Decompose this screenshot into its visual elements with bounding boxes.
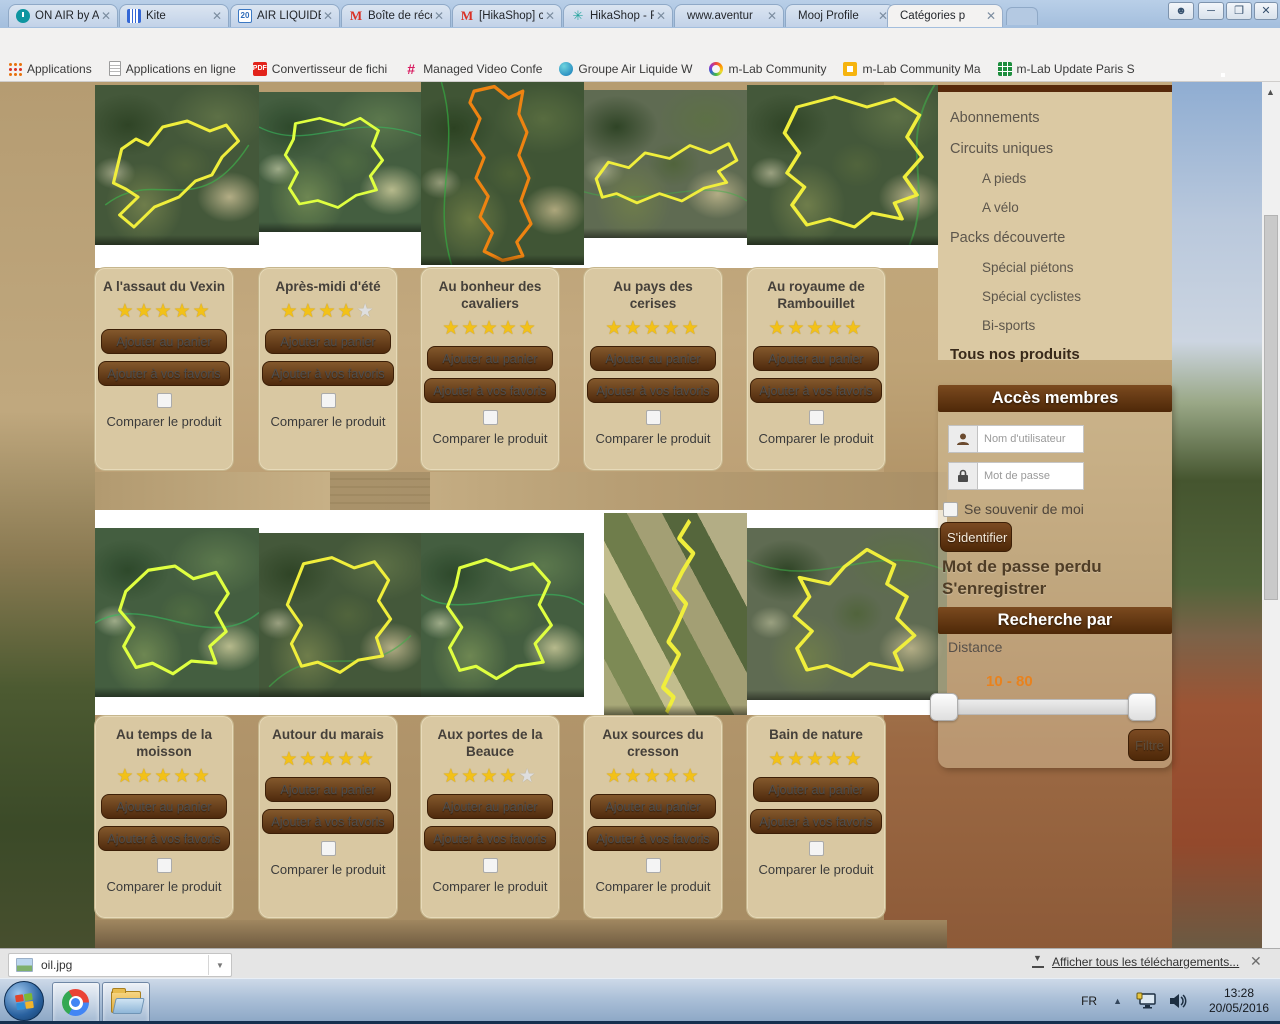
- product-card: Aux portes de la Beauce ★★★★★ Ajouter au…: [421, 716, 559, 918]
- hikashop-icon: ✳: [571, 9, 585, 23]
- volume-icon[interactable]: [1168, 992, 1188, 1010]
- chevron-down-icon[interactable]: ▼: [209, 961, 231, 970]
- columns-icon: [127, 9, 141, 23]
- show-all-downloads[interactable]: Afficher tous les téléchargements...: [1032, 955, 1239, 969]
- product-title[interactable]: Après-midi d'été: [260, 269, 396, 295]
- rating-stars: ★★★★★: [260, 750, 396, 770]
- bookmarks-bar: Applications Applications en ligne PDFCo…: [0, 56, 1280, 82]
- background-photo: [1172, 82, 1262, 948]
- members-panel: Accès membres Se souvenir de moi S'ident…: [938, 385, 1172, 768]
- rating-stars: ★★★★★: [585, 319, 721, 339]
- profile-person-icon[interactable]: ☻: [1168, 2, 1194, 20]
- close-tab-icon[interactable]: ✕: [432, 10, 446, 22]
- distance-label: Distance: [948, 639, 1002, 655]
- compare-checkbox[interactable]: [646, 858, 661, 873]
- product-map-moisson[interactable]: [95, 528, 259, 697]
- category-packs-decouverte[interactable]: Packs découverte: [950, 230, 1172, 246]
- add-to-cart-button[interactable]: Ajouter au panier: [265, 329, 391, 354]
- gmail-icon: M: [460, 9, 474, 23]
- lost-password-link[interactable]: Mot de passe perdu: [942, 557, 1102, 577]
- tab-mooj-profile[interactable]: Mooj Profile✕: [785, 4, 895, 27]
- bookmark-mlab-update[interactable]: m-Lab Update Paris S: [998, 62, 1135, 76]
- tab-onair[interactable]: ON AIR by A✕: [8, 4, 118, 27]
- new-tab-button[interactable]: [1006, 7, 1038, 25]
- browser-toolbar: ← → ↻ ⌂ aventures-culturelles.com/nos-pr…: [0, 28, 1280, 56]
- distance-slider-track[interactable]: [940, 699, 1154, 715]
- chrome-icon: [62, 989, 89, 1016]
- sidebar-header-bar: [938, 85, 1172, 92]
- add-to-favorites-button[interactable]: Ajouter à vos favoris: [587, 378, 719, 403]
- rating-stars: ★★★★★: [748, 750, 884, 770]
- add-to-cart-button[interactable]: Ajouter au panier: [265, 777, 391, 802]
- product-map-vexin[interactable]: [95, 85, 259, 245]
- product-map-cavaliers[interactable]: [421, 82, 584, 265]
- page-icon: [109, 61, 121, 76]
- start-button[interactable]: [4, 981, 44, 1021]
- compare-checkbox[interactable]: [321, 841, 336, 856]
- gmail-icon: M: [349, 9, 363, 23]
- product-card: Au pays des cerises ★★★★★ Ajouter au pan…: [584, 268, 722, 470]
- compare-label: Comparer le produit: [585, 431, 721, 446]
- remember-checkbox[interactable]: [943, 502, 958, 517]
- add-to-favorites-button[interactable]: Ajouter à vos favoris: [98, 361, 230, 386]
- page-viewport: A l'assaut du Vexin ★★★★★ Ajouter au pan…: [0, 82, 1280, 948]
- product-card: Au temps de la moisson ★★★★★ Ajouter au …: [95, 716, 233, 918]
- close-tab-icon[interactable]: ✕: [210, 10, 224, 22]
- add-to-favorites-button[interactable]: Ajouter à vos favoris: [98, 826, 230, 851]
- compare-label: Comparer le produit: [422, 879, 558, 894]
- close-tab-icon[interactable]: ✕: [765, 10, 779, 22]
- compare-label: Comparer le produit: [422, 431, 558, 446]
- filter-button[interactable]: Filtre: [1128, 729, 1170, 761]
- category-a-pieds[interactable]: A pieds: [982, 171, 1172, 186]
- clock-date: 20/05/2016: [1202, 1001, 1276, 1016]
- background-photo: [95, 920, 947, 948]
- compare-checkbox[interactable]: [809, 410, 824, 425]
- product-map-apres-midi[interactable]: [259, 92, 421, 232]
- taskbar-explorer-button[interactable]: [102, 982, 150, 1024]
- compare-checkbox[interactable]: [646, 410, 661, 425]
- background-tower: [330, 472, 430, 510]
- background-photo: [0, 82, 95, 948]
- tab-strip: ON AIR by A✕ Kite✕ 20AIR LIQUIDE✕ MBoîte…: [0, 0, 1280, 28]
- apps-grid-icon: [8, 62, 22, 76]
- close-tab-icon[interactable]: ✕: [321, 10, 335, 22]
- category-tous-nos-produits[interactable]: Tous nos produits: [950, 346, 1172, 363]
- category-special-cyclistes[interactable]: Spécial cyclistes: [982, 289, 1172, 304]
- add-to-favorites-button[interactable]: Ajouter à vos favoris: [262, 809, 394, 834]
- product-title[interactable]: Au royaume de Rambouillet: [748, 269, 884, 312]
- close-tab-icon[interactable]: ✕: [654, 10, 668, 22]
- product-card: A l'assaut du Vexin ★★★★★ Ajouter au pan…: [95, 268, 233, 470]
- close-tab-icon[interactable]: ✕: [984, 10, 998, 22]
- add-to-cart-button[interactable]: Ajouter au panier: [753, 346, 879, 371]
- category-special-pietons[interactable]: Spécial piétons: [982, 260, 1172, 275]
- product-map-cresson[interactable]: [604, 513, 747, 715]
- add-to-cart-button[interactable]: Ajouter au panier: [590, 794, 716, 819]
- product-map-cerises[interactable]: [584, 90, 747, 238]
- register-link[interactable]: S'enregistrer: [942, 579, 1046, 599]
- add-to-cart-button[interactable]: Ajouter au panier: [101, 794, 227, 819]
- add-to-favorites-button[interactable]: Ajouter à vos favoris: [750, 809, 882, 834]
- taskbar-chrome-button[interactable]: [52, 982, 100, 1024]
- windows-taskbar: FR ▲ 13:28 20/05/2016: [0, 978, 1280, 1024]
- add-to-favorites-button[interactable]: Ajouter à vos favoris: [424, 826, 556, 851]
- downloads-bar: oil.jpg ▼ Afficher tous les téléchargeme…: [0, 948, 1280, 978]
- search-title: Recherche par: [938, 607, 1172, 634]
- background-photo: [95, 472, 947, 510]
- close-tab-icon[interactable]: ✕: [543, 10, 557, 22]
- add-to-cart-button[interactable]: Ajouter au panier: [427, 794, 553, 819]
- clock-time: 13:28: [1202, 986, 1276, 1001]
- add-to-favorites-button[interactable]: Ajouter à vos favoris: [424, 378, 556, 403]
- login-button[interactable]: S'identifier: [940, 522, 1012, 552]
- folder-icon: [111, 991, 141, 1013]
- username-row: [948, 425, 1094, 455]
- compare-checkbox[interactable]: [809, 841, 824, 856]
- distance-range-value: 10 - 80: [986, 673, 1033, 690]
- download-icon: [1032, 956, 1044, 968]
- bookmark-convertisseur[interactable]: PDFConvertisseur de fichi: [253, 62, 387, 76]
- calendar-20-icon: 20: [238, 9, 252, 23]
- compare-label: Comparer le produit: [96, 879, 232, 894]
- rating-stars: ★★★★★: [96, 767, 232, 787]
- add-to-cart-button[interactable]: Ajouter au panier: [101, 329, 227, 354]
- add-to-cart-button[interactable]: Ajouter au panier: [753, 777, 879, 802]
- green-table-icon: [998, 62, 1012, 76]
- minimize-button[interactable]: ─: [1198, 2, 1224, 20]
- product-card: Après-midi d'été ★★★★★ Ajouter au panier…: [259, 268, 397, 470]
- person-icon: [948, 425, 978, 453]
- windows-logo-icon: [15, 993, 35, 1011]
- download-item-chip[interactable]: oil.jpg ▼: [8, 953, 232, 977]
- tab-airliquide[interactable]: 20AIR LIQUIDE✕: [230, 4, 340, 27]
- product-card: Bain de nature ★★★★★ Ajouter au panier A…: [747, 716, 885, 918]
- product-title[interactable]: Aux portes de la Beauce: [422, 717, 558, 760]
- rating-stars: ★★★★★: [422, 319, 558, 339]
- product-title[interactable]: Aux sources du cresson: [585, 717, 721, 760]
- tab-hikashop[interactable]: ✳HikaShop - F✕: [563, 4, 673, 27]
- bookmark-mlab-community[interactable]: m-Lab Community: [709, 62, 826, 76]
- password-row: [948, 462, 1094, 492]
- product-map-rambouillet[interactable]: [747, 85, 947, 245]
- compare-label: Comparer le produit: [748, 431, 884, 446]
- screen: ON AIR by A✕ Kite✕ 20AIR LIQUIDE✕ MBoîte…: [0, 0, 1280, 1024]
- rating-stars: ★★★★★: [260, 302, 396, 322]
- add-to-cart-button[interactable]: Ajouter au panier: [427, 346, 553, 371]
- add-to-favorites-button[interactable]: Ajouter à vos favoris: [750, 378, 882, 403]
- rating-stars: ★★★★★: [585, 767, 721, 787]
- remember-label: Se souvenir de moi: [964, 501, 1084, 517]
- tab-aventures[interactable]: www.aventur✕: [674, 4, 784, 27]
- category-circuits-uniques[interactable]: Circuits uniques: [950, 141, 1172, 157]
- username-input[interactable]: [978, 425, 1084, 453]
- compare-label: Comparer le produit: [260, 862, 396, 877]
- close-downloads-icon[interactable]: ✕: [1250, 953, 1262, 970]
- product-title[interactable]: Bain de nature: [748, 717, 884, 743]
- rating-stars: ★★★★★: [96, 302, 232, 322]
- hash-icon: #: [404, 62, 418, 76]
- slider-handle-min[interactable]: [930, 693, 958, 721]
- tab-hikashop-mail[interactable]: M[HikaShop] c✕: [452, 4, 562, 27]
- add-to-cart-button[interactable]: Ajouter au panier: [590, 346, 716, 371]
- compare-checkbox[interactable]: [321, 393, 336, 408]
- tab-kite[interactable]: Kite✕: [119, 4, 229, 27]
- show-all-downloads-link[interactable]: Afficher tous les téléchargements...: [1052, 955, 1239, 969]
- compare-label: Comparer le produit: [96, 414, 232, 429]
- language-indicator[interactable]: FR: [1081, 994, 1097, 1008]
- globe-icon: [559, 62, 573, 76]
- product-card: Au bonheur des cavaliers ★★★★★ Ajouter a…: [421, 268, 559, 470]
- compare-checkbox[interactable]: [483, 858, 498, 873]
- members-title: Accès membres: [938, 385, 1172, 412]
- pdf-icon: PDF: [253, 62, 267, 76]
- system-tray: FR ▲ 13:28 20/05/2016: [1081, 979, 1276, 1022]
- compare-checkbox[interactable]: [157, 393, 172, 408]
- product-card: Aux sources du cresson ★★★★★ Ajouter au …: [584, 716, 722, 918]
- bookmark-air-liquide[interactable]: Groupe Air Liquide W: [559, 62, 692, 76]
- dots-circle-icon: [709, 62, 723, 76]
- close-tab-icon[interactable]: ✕: [99, 10, 113, 22]
- scrollbar-thumb[interactable]: [1264, 215, 1278, 600]
- bookmark-apps-en-ligne[interactable]: Applications en ligne: [109, 61, 236, 76]
- product-title[interactable]: Au temps de la moisson: [96, 717, 232, 760]
- category-menu: Abonnements Circuits uniques A pieds A v…: [938, 92, 1172, 360]
- category-bi-sports[interactable]: Bi-sports: [982, 318, 1172, 333]
- product-map-beauce[interactable]: [421, 533, 584, 697]
- product-title[interactable]: Au bonheur des cavaliers: [422, 269, 558, 312]
- compare-checkbox[interactable]: [157, 858, 172, 873]
- add-to-favorites-button[interactable]: Ajouter à vos favoris: [587, 826, 719, 851]
- bookmark-mlab-community-ma[interactable]: m-Lab Community Ma: [843, 62, 980, 76]
- product-card: Au royaume de Rambouillet ★★★★★ Ajouter …: [747, 268, 885, 470]
- lock-icon: [948, 462, 978, 490]
- power-icon: [16, 9, 30, 23]
- show-hidden-icons[interactable]: ▲: [1113, 996, 1122, 1006]
- product-map-marais[interactable]: [259, 533, 421, 697]
- remember-me-row: Se souvenir de moi: [943, 501, 1084, 517]
- rating-stars: ★★★★★: [748, 319, 884, 339]
- category-a-velo[interactable]: A vélo: [982, 200, 1172, 215]
- compare-label: Comparer le produit: [748, 862, 884, 877]
- network-icon[interactable]: [1136, 992, 1158, 1010]
- compare-label: Comparer le produit: [585, 879, 721, 894]
- bookmark-managed-video[interactable]: #Managed Video Confe: [404, 62, 542, 76]
- product-title[interactable]: A l'assaut du Vexin: [96, 269, 232, 295]
- product-card: Autour du marais ★★★★★ Ajouter au panier…: [259, 716, 397, 918]
- yellow-square-icon: [843, 62, 857, 76]
- product-title[interactable]: Autour du marais: [260, 717, 396, 743]
- close-window-button[interactable]: ✕: [1254, 2, 1278, 20]
- scroll-up-icon[interactable]: ▲: [1266, 87, 1275, 97]
- maximize-button[interactable]: ❐: [1226, 2, 1252, 20]
- slider-handle-max[interactable]: [1128, 693, 1156, 721]
- rating-stars: ★★★★★: [422, 767, 558, 787]
- compare-checkbox[interactable]: [483, 410, 498, 425]
- image-file-icon: [16, 958, 33, 972]
- bookmark-applications[interactable]: Applications: [8, 62, 92, 76]
- password-input[interactable]: [978, 462, 1084, 490]
- add-to-favorites-button[interactable]: Ajouter à vos favoris: [262, 361, 394, 386]
- category-abonnements[interactable]: Abonnements: [950, 110, 1172, 126]
- compare-label: Comparer le produit: [260, 414, 396, 429]
- product-map-bain[interactable]: [747, 528, 947, 700]
- download-filename: oil.jpg: [41, 958, 208, 972]
- product-title[interactable]: Au pays des cerises: [585, 269, 721, 312]
- tab-gmail-inbox[interactable]: MBoîte de réce✕: [341, 4, 451, 27]
- scrollbar[interactable]: ▲: [1262, 82, 1280, 948]
- tab-categories-active[interactable]: Catégories p✕: [887, 4, 1003, 27]
- taskbar-clock[interactable]: 13:28 20/05/2016: [1202, 986, 1276, 1016]
